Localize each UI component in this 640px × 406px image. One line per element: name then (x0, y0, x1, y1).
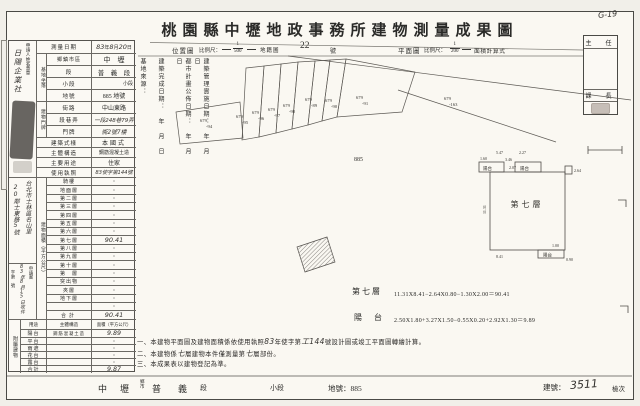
note-text: 層建物本件僅測量第 (185, 351, 245, 358)
dimension-label: 2.27 (519, 150, 526, 155)
dimension-label: 5.47 (496, 150, 503, 155)
note-handwritten: 83 (264, 337, 274, 346)
footer-lot-label: 地號： (328, 384, 351, 393)
parcel-679-95 (242, 66, 264, 140)
parcel-label: -97 (274, 113, 281, 118)
road-parcel-label: 679 (444, 96, 452, 101)
note-text: 年使字第 (275, 339, 302, 346)
dimension-label: 1.00 (552, 243, 559, 248)
parcel-label: 679 (356, 95, 364, 100)
balcony-label: 陽台 (520, 165, 529, 172)
balcony-label: 陽台 (543, 252, 552, 259)
parcel-label: -91 (362, 101, 369, 106)
parcel-label: -96 (258, 116, 265, 121)
note-1: 一、本建物平面圖及建物面積係依使用執照83年使字第工144號設計圖或竣工平面圖轉… (137, 336, 425, 347)
parcel-label: -95 (242, 120, 249, 125)
footer-district-unit-bottom: 市 (140, 385, 145, 390)
floor-plan (479, 146, 628, 313)
parcel-label: 679 (305, 97, 313, 102)
note-text: 一、本建物平面圖及建物面積係依使用執照 (137, 339, 264, 346)
footer-section-unit: 段 (200, 383, 207, 393)
road-line-upper (288, 56, 631, 100)
parcel-label: -98 (289, 109, 296, 114)
title-underline (150, 43, 583, 51)
footer-section: 普 義 (152, 382, 191, 395)
location-map (176, 56, 631, 144)
footer-lot: 地號：885 (328, 383, 362, 394)
parcel-label: -90 (331, 104, 338, 109)
registration-mark (618, 200, 626, 207)
parcel-labels: 679-94 679-95 679-96 679-97 679-98 679-8… (200, 95, 458, 163)
formula-seventh-floor: 11.31X8.41−2.64X0.80−1.30X2.00＝90.41 (394, 289, 510, 298)
footer-subsection: 小段 (270, 383, 284, 393)
parcel-label: 679 (283, 103, 291, 108)
note-text: 二、本建物係 (137, 351, 177, 358)
parcel-label: 679 (268, 107, 276, 112)
road-line-lower (398, 90, 556, 142)
formula-balcony: 2.50X1.80+3.27X1.50−0.55X0.20+2.92X1.30＝… (394, 315, 535, 324)
footer-building-number: 3511 (570, 377, 599, 392)
formula-name-seventh-floor: 第七層 (352, 286, 382, 297)
footer-district: 中 壢 (98, 382, 131, 395)
parcel-label: -94 (206, 124, 213, 129)
dimension-label: 2.64 (574, 168, 581, 173)
road-parcel-label: -163 (449, 102, 458, 107)
parcel-679-91 (337, 59, 415, 117)
dimension-label: 1.60 (480, 156, 487, 161)
parcel-label: 679 (325, 98, 333, 103)
footer-district-unit: 鄉 市 (140, 380, 145, 390)
floor-plan-labels: 第七層 陽台 陽台 陽台 1.60 5.47 2.27 3.46 2.07 2.… (480, 150, 581, 262)
parcel-679-96 (259, 64, 281, 137)
parcel-679-90 (322, 59, 346, 121)
note-text: 三、本成果表以建物登記為準。 (137, 361, 231, 368)
dimension-label: 2.07 (509, 165, 516, 170)
parcel-label: 679 (236, 114, 244, 119)
dimension-label: 0.90 (566, 257, 573, 262)
subject-building-hatched (297, 237, 335, 272)
seventh-floor-label: 第七層 (511, 199, 544, 209)
note-handwritten: 工144 (301, 337, 324, 346)
footer-lot-number: 885 (351, 384, 362, 393)
note-text: 層部份。 (253, 351, 280, 358)
dimension-label: 8.41 (496, 254, 503, 259)
dimension-label: 11.31 (482, 205, 487, 214)
registration-mark (620, 306, 628, 313)
note-handwritten: 七 (177, 349, 185, 358)
note-2: 二、本建物係七層建物本件僅測量第七層部份。 (137, 348, 280, 359)
plan-right-box (565, 166, 572, 174)
site-number-label: 885 (354, 157, 363, 163)
parcel-label: 679 (252, 110, 260, 115)
note-3: 三、本成果表以建物登記為準。 (137, 359, 231, 368)
footer-building-label: 建號： (543, 382, 566, 393)
parcel-679-89 (308, 60, 330, 125)
floor-plan-outline (490, 172, 565, 250)
parcel-679-94 (176, 102, 243, 144)
parcel-label: 679 (200, 118, 208, 123)
scanned-survey-document: G-19 桃園縣中壢地政事務所建物測量成果圖 位置圖 比例尺： 1 500 地籍… (0, 0, 640, 406)
footer-check-label: 檢次 (612, 383, 625, 393)
balcony-label: 陽台 (483, 165, 492, 172)
dimension-label: 3.46 (505, 157, 512, 162)
formula-name-balcony: 陽 台 (354, 312, 384, 323)
note-text: 號設計圖或竣工平面圖轉繪計算。 (325, 339, 425, 346)
parcel-label: -89 (311, 103, 318, 108)
